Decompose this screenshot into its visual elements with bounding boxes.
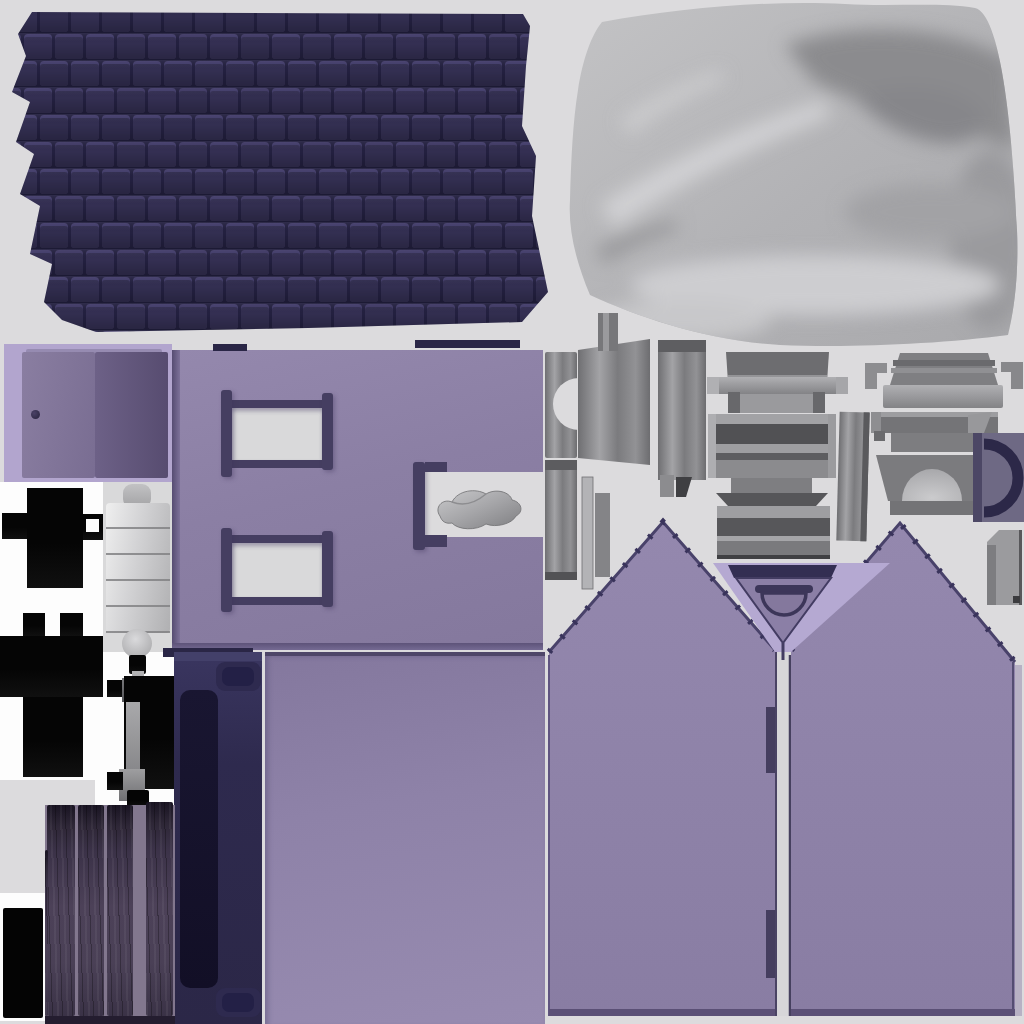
roof-edge-sliver-2 xyxy=(415,340,520,348)
window2-left-post xyxy=(221,528,232,612)
bedroll-seams xyxy=(106,503,170,633)
black-bracket-ear-right xyxy=(60,613,83,636)
shutter-top-edge xyxy=(174,652,262,661)
shutter-tab-bottom xyxy=(216,988,261,1017)
black-bracket-bottom-leg xyxy=(23,697,83,777)
shutter-inset-panel xyxy=(180,690,218,988)
window1-bottom-bar xyxy=(227,460,327,468)
gable-hinge-tab-1 xyxy=(766,707,775,773)
black-bracket-top-body xyxy=(27,488,83,588)
wood-plank-2 xyxy=(78,805,104,1016)
wood-plank-sliver xyxy=(45,850,48,1016)
gable-hinge-tab-2 xyxy=(766,910,775,978)
wood-plank-3 xyxy=(107,805,133,1016)
gable-walls xyxy=(540,515,1024,1024)
door-leaf-right xyxy=(95,352,168,478)
hinge-left-tab-bottom xyxy=(107,772,123,790)
hinge-left-tab-top xyxy=(107,680,123,697)
clamp-piece xyxy=(545,313,650,465)
window2-top-bar xyxy=(227,535,327,543)
black-bracket-hole xyxy=(86,519,99,532)
wood-plank-1 xyxy=(47,805,75,1016)
texture-atlas-canvas xyxy=(0,0,1024,1024)
black-bracket-bottom-body xyxy=(0,636,103,697)
satin-fabric-island xyxy=(560,0,1024,350)
window2-bottom-bar xyxy=(227,597,327,605)
shutter-panel-island xyxy=(174,652,262,1024)
notch-bottom-tab xyxy=(425,535,447,547)
arc-handle-square xyxy=(973,433,1024,522)
window1-top-bar xyxy=(227,400,327,408)
shutter-tab-top-inset xyxy=(222,667,254,686)
wood-plank-4 xyxy=(146,802,173,1016)
notch-post xyxy=(413,462,425,550)
slat-panel-left xyxy=(658,340,706,497)
roof-shingles-island xyxy=(8,6,556,340)
gable-gap-strip xyxy=(775,650,791,1016)
vent-lintel-bar xyxy=(728,565,837,578)
window1-left-post xyxy=(221,390,232,477)
black-bracket-top-left-arm xyxy=(2,513,27,539)
shutter-tab-bottom-inset xyxy=(222,993,254,1012)
shutter-tab-top xyxy=(216,662,261,691)
fireplace-arch xyxy=(876,455,988,515)
small-black-rect xyxy=(3,908,43,1018)
window2-right-post xyxy=(322,531,333,607)
roof-edge-sliver-1 xyxy=(213,344,247,351)
crumpled-cloth xyxy=(432,484,522,530)
window2-opening xyxy=(232,543,323,597)
window1-opening xyxy=(232,408,323,460)
wood-planks-bottom-edge xyxy=(45,1016,175,1024)
black-bracket-ear-left xyxy=(23,613,45,636)
window1-right-post xyxy=(322,393,333,470)
wall-left-edge xyxy=(172,350,180,650)
wood-planks-island xyxy=(45,805,175,1024)
bedroll-body xyxy=(106,503,170,633)
purple-sheet-blank xyxy=(265,652,545,1024)
bedroll-bottom-cap xyxy=(122,629,152,658)
notch-top-tab xyxy=(425,462,447,472)
door-knob xyxy=(31,410,40,419)
